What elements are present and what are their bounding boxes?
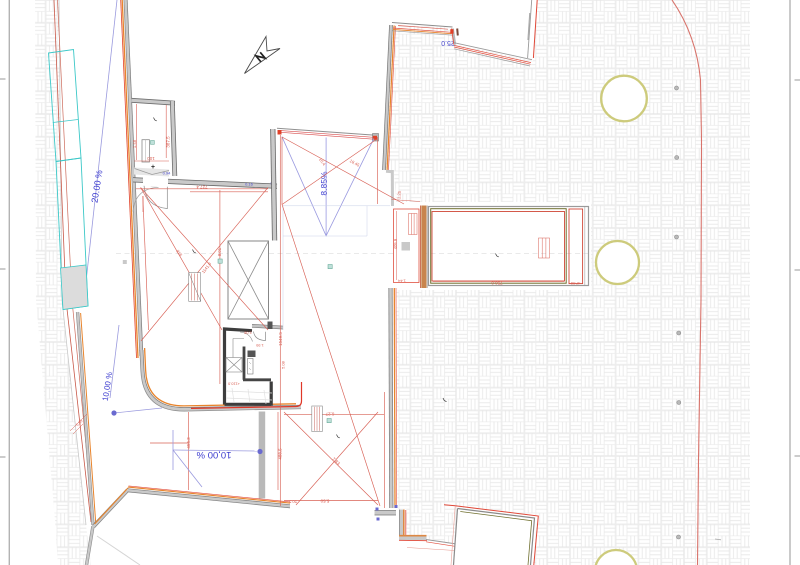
- svg-text:1549.5: 1549.5: [278, 332, 283, 346]
- svg-text:2.08: 2.08: [244, 331, 251, 335]
- svg-text:405.9: 405.9: [393, 238, 398, 249]
- svg-text:727.4: 727.4: [196, 185, 208, 190]
- svg-text:0.94: 0.94: [163, 171, 172, 176]
- svg-text:488.5: 488.5: [278, 448, 283, 460]
- svg-text:50.5: 50.5: [288, 500, 297, 505]
- svg-text:0.16: 0.16: [245, 182, 254, 187]
- svg-text:1.25: 1.25: [396, 190, 402, 199]
- svg-text:1.99: 1.99: [256, 343, 263, 347]
- svg-text:+110.0: +110.0: [227, 382, 240, 387]
- svg-text:8.85%: 8.85%: [319, 171, 329, 196]
- svg-text:5.50: 5.50: [320, 499, 329, 504]
- svg-text:454.3: 454.3: [186, 437, 191, 449]
- svg-text:750.0: 750.0: [491, 281, 503, 286]
- svg-text:387.5: 387.5: [166, 136, 171, 148]
- svg-text:100: 100: [147, 156, 155, 161]
- svg-text:8.01: 8.01: [217, 247, 222, 256]
- svg-text:6.27: 6.27: [325, 412, 334, 417]
- svg-text:1.44: 1.44: [397, 279, 406, 284]
- svg-text:47.08: 47.08: [571, 281, 581, 285]
- svg-text:5.08: 5.08: [281, 360, 286, 369]
- svg-text:25.0: 25.0: [441, 39, 455, 46]
- svg-text:1.48: 1.48: [132, 139, 137, 148]
